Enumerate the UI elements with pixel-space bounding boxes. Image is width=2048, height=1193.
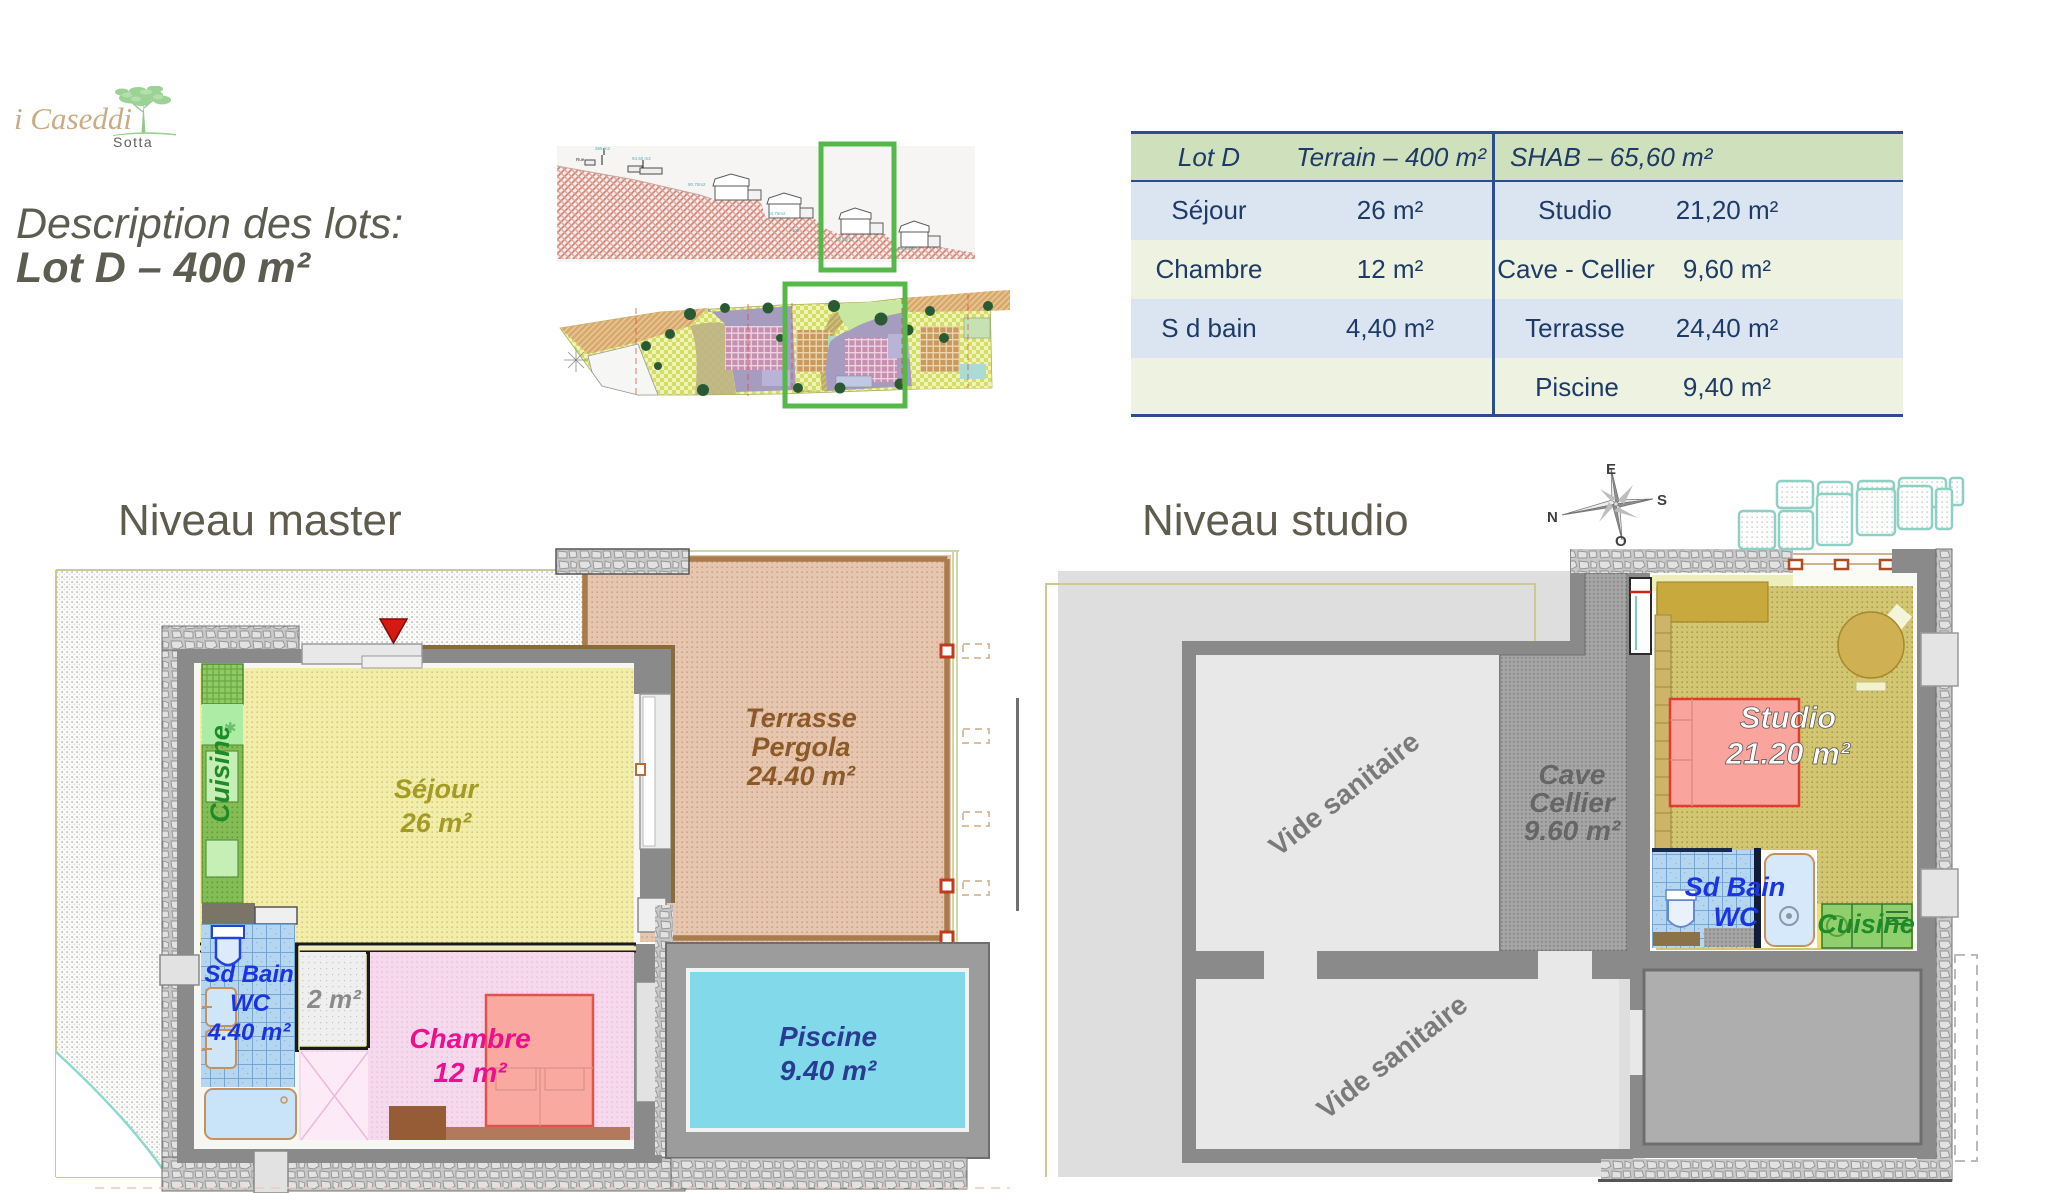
svg-text:12 m²: 12 m² <box>1357 254 1424 284</box>
svg-text:24.40 m²: 24.40 m² <box>746 761 856 791</box>
svg-text:SHAB – 65,60 m²: SHAB – 65,60 m² <box>1510 142 1714 172</box>
svg-text:2 m²: 2 m² <box>306 984 362 1014</box>
svg-text:Piscine: Piscine <box>779 1021 877 1052</box>
svg-text:Terrasse: Terrasse <box>745 703 857 733</box>
svg-text:Chambre: Chambre <box>1156 254 1263 284</box>
svg-text:24,40 m²: 24,40 m² <box>1676 313 1779 343</box>
svg-text:9,40 m²: 9,40 m² <box>1683 372 1771 402</box>
svg-text:Sotta: Sotta <box>113 134 153 150</box>
svg-text:O: O <box>1615 533 1627 550</box>
svg-text:98.40m2: 98.40m2 <box>898 246 916 251</box>
svg-text:Rue: Rue <box>576 157 585 162</box>
svg-text:Séjour: Séjour <box>1171 195 1246 225</box>
svg-text:21,20 m²: 21,20 m² <box>1676 195 1779 225</box>
svg-text:Cuisine: Cuisine <box>1817 909 1915 939</box>
svg-text:Piscine: Piscine <box>1535 372 1619 402</box>
svg-text:S d bain: S d bain <box>1161 313 1256 343</box>
svg-text:WC: WC <box>230 990 271 1017</box>
svg-text:N: N <box>1547 509 1558 526</box>
svg-text:Terrasse: Terrasse <box>1525 313 1625 343</box>
svg-text:365 m2: 365 m2 <box>595 146 611 151</box>
svg-text:4.40 m²: 4.40 m² <box>207 1019 292 1046</box>
svg-text:Studio: Studio <box>1538 195 1612 225</box>
svg-text:94.70m2: 94.70m2 <box>768 211 786 216</box>
svg-text:21.20 m²: 21.20 m² <box>1725 736 1851 771</box>
svg-text:i Caseddi: i Caseddi <box>14 101 132 136</box>
svg-text:Terrain – 400 m²: Terrain – 400 m² <box>1296 142 1487 172</box>
svg-text:Sd Bain: Sd Bain <box>1685 872 1786 902</box>
svg-text:Studio: Studio <box>1740 700 1836 735</box>
svg-text:94.50 m2: 94.50 m2 <box>632 156 651 161</box>
svg-text:99.60m2: 99.60m2 <box>836 237 854 242</box>
svg-text:9,60 m²: 9,60 m² <box>1683 254 1771 284</box>
svg-text:Cave: Cave <box>1539 759 1606 790</box>
svg-text:Cellier: Cellier <box>1529 787 1617 818</box>
svg-text:Chambre: Chambre <box>409 1023 530 1054</box>
svg-text:4,40 m²: 4,40 m² <box>1346 313 1434 343</box>
svg-text:102: 102 <box>792 228 800 233</box>
svg-text:E: E <box>1606 461 1616 478</box>
svg-text:Cave - Cellier: Cave - Cellier <box>1497 254 1655 284</box>
svg-text:Lot D: Lot D <box>1178 142 1240 172</box>
svg-text:26 m²: 26 m² <box>1357 195 1424 225</box>
svg-text:WC: WC <box>1714 902 1759 932</box>
svg-text:9.40 m²: 9.40 m² <box>780 1055 877 1086</box>
svg-text:Cuisine: Cuisine <box>205 725 235 823</box>
svg-text:9.60 m²: 9.60 m² <box>1524 815 1621 846</box>
svg-text:S: S <box>1657 492 1667 509</box>
svg-text:Sd Bain: Sd Bain <box>204 961 293 988</box>
svg-text:Pergola: Pergola <box>751 732 850 762</box>
svg-text:12 m²: 12 m² <box>433 1057 507 1088</box>
svg-text:90.70m2: 90.70m2 <box>688 182 706 187</box>
svg-text:Séjour: Séjour <box>394 774 480 804</box>
svg-text:26 m²: 26 m² <box>400 808 473 838</box>
